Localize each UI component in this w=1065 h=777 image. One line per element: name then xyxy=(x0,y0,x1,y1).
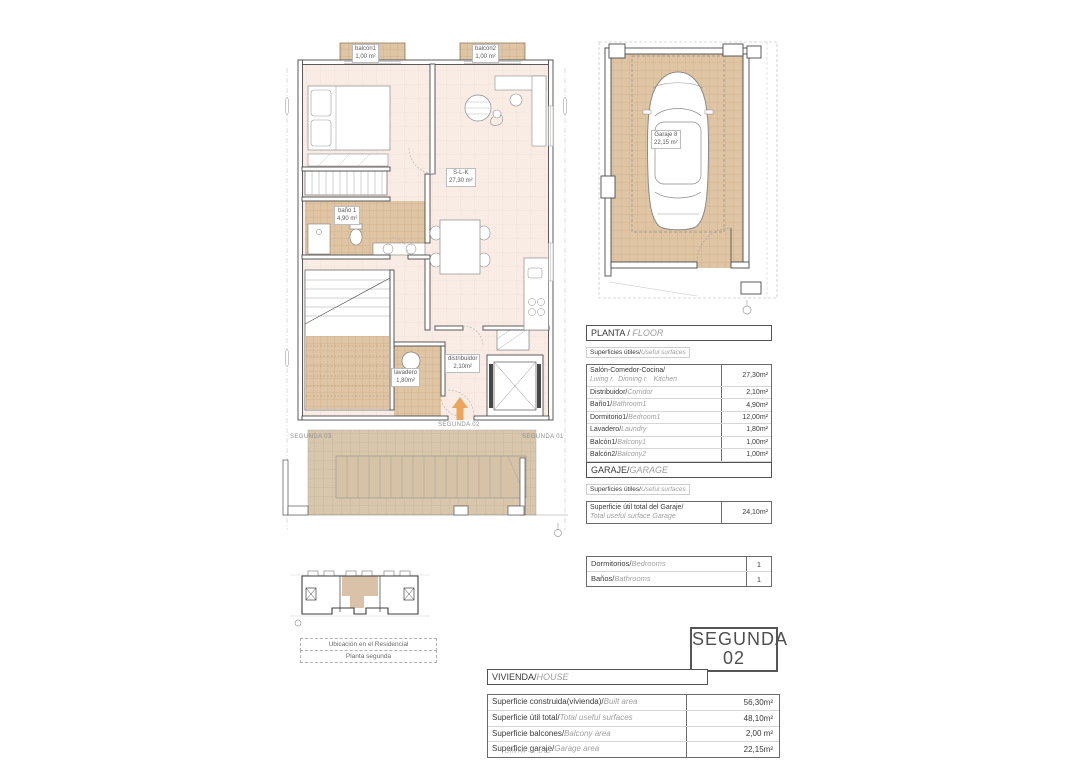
table-row: Salón-Comedor-Cocina/Living r. Dinning r… xyxy=(587,365,771,386)
living-label: S-L-K 27,30 m² xyxy=(446,168,476,187)
table-row: Dormitorio1/Bedroom1 12,00m² xyxy=(587,411,771,423)
elevator xyxy=(487,355,543,417)
garaje-section: GARAJE/GARAGE Superficies útiles/Useful … xyxy=(586,462,772,524)
vivienda-header: VIVIENDA/HOUSE xyxy=(487,669,708,685)
garaje-table: Superficie útil total del Garaje/Total u… xyxy=(586,501,772,524)
key-plan xyxy=(290,566,430,630)
rooms-section: Dormitorios/Bedrooms 1 Baños/Bathrooms 1 xyxy=(586,556,772,587)
planta-header: PLANTA / FLOOR xyxy=(586,325,772,341)
key-plan-caption: Ubicación en el Residencial Planta segun… xyxy=(300,638,437,663)
garage-label: Garaje 8 22,15 m² xyxy=(651,130,681,149)
kitchen-counter xyxy=(524,258,549,330)
highlighted-unit xyxy=(342,576,378,608)
laundry-label: lavadero 1,80m² xyxy=(391,368,420,387)
staircase-lower xyxy=(305,270,390,410)
unit-here-label: SEGUNDA 02 xyxy=(438,422,480,428)
floor-plan-drawing xyxy=(278,28,573,543)
garaje-subtitle: Superficies útiles/Useful surfaces xyxy=(586,484,690,495)
bed xyxy=(308,86,390,150)
table-row: Balcón2/Balcony2 1,00m² xyxy=(587,448,771,460)
table-row: Baños/Bathrooms 1 xyxy=(587,571,771,586)
garage-marker-circle xyxy=(743,300,751,314)
key-plan-marker-circle xyxy=(295,620,301,626)
plan-marker-circle xyxy=(555,523,562,537)
sheet-scale-note: DIN A4 - e 1/75 xyxy=(505,749,551,755)
balcony2-label: balcón2 1,00 m² xyxy=(472,44,499,63)
table-row: Superficie balcones/Balcony area 2,00 m² xyxy=(488,726,779,742)
plan-sheet: balcón1 1,00 m² balcón2 1,00 m² S-L-K 27… xyxy=(0,0,1065,777)
balcony1-label: balcón1 1,00 m² xyxy=(352,44,379,63)
key-plan-drawing xyxy=(290,566,430,630)
storage-box xyxy=(497,328,529,350)
planta-title-es: PLANTA / xyxy=(591,328,630,338)
planta-table: Salón-Comedor-Cocina/Living r. Dinning r… xyxy=(586,364,772,474)
unit-name: SEGUNDA xyxy=(692,630,776,649)
table-row: Baño1/Bathroom1 4,90m² xyxy=(587,398,771,410)
rooms-table: Dormitorios/Bedrooms 1 Baños/Bathrooms 1 xyxy=(586,556,772,587)
caption-line-2: Planta segunda xyxy=(300,650,437,663)
unit-right-label: SEGUNDA 01 xyxy=(522,434,564,440)
table-row: Lavadero/Laundry 1,80m² xyxy=(587,423,771,435)
table-row: Superficie construida(vivienda)/Built ar… xyxy=(488,695,779,710)
bathroom xyxy=(305,201,425,255)
unit-number-box: SEGUNDA 02 xyxy=(690,627,778,672)
key-plan-core-right xyxy=(404,588,414,600)
table-row: Dormitorios/Bedrooms 1 xyxy=(587,557,771,571)
planta-subtitle: Superficies útiles/Useful surfaces xyxy=(586,347,690,358)
floor-plan: balcón1 1,00 m² balcón2 1,00 m² S-L-K 27… xyxy=(278,28,573,543)
terrace-roof xyxy=(283,430,568,515)
table-row: Superficie útil total del Garaje/Total u… xyxy=(587,502,771,523)
hall-label: distribuidor 2,10m² xyxy=(445,354,480,373)
vivienda-header-wrap: VIVIENDA/HOUSE xyxy=(487,669,708,685)
garage-drawing xyxy=(597,38,782,323)
unit-left-label: SEGUNDA 03 xyxy=(290,434,332,440)
staircase-upper xyxy=(305,171,387,195)
planta-title-en: FLOOR xyxy=(632,328,663,338)
key-plan-core-left xyxy=(306,588,316,600)
planta-section: PLANTA / FLOOR Superficies útiles/Useful… xyxy=(586,325,772,474)
bathroom-label: baño 1 4,90 m² xyxy=(334,206,360,225)
car-top-view xyxy=(643,72,713,230)
garaje-header: GARAJE/GARAGE xyxy=(586,462,772,478)
unit-number: 02 xyxy=(692,649,776,668)
garage-plan: Garaje 8 22,15 m² xyxy=(597,38,782,323)
table-row: Balcón1/Balcony1 1,00m² xyxy=(587,436,771,448)
table-row: Superficie útil total/Total useful surfa… xyxy=(488,710,779,726)
table-row: Distribuidor/Corridor 2,10m² xyxy=(587,386,771,398)
wardrobe xyxy=(308,154,388,166)
